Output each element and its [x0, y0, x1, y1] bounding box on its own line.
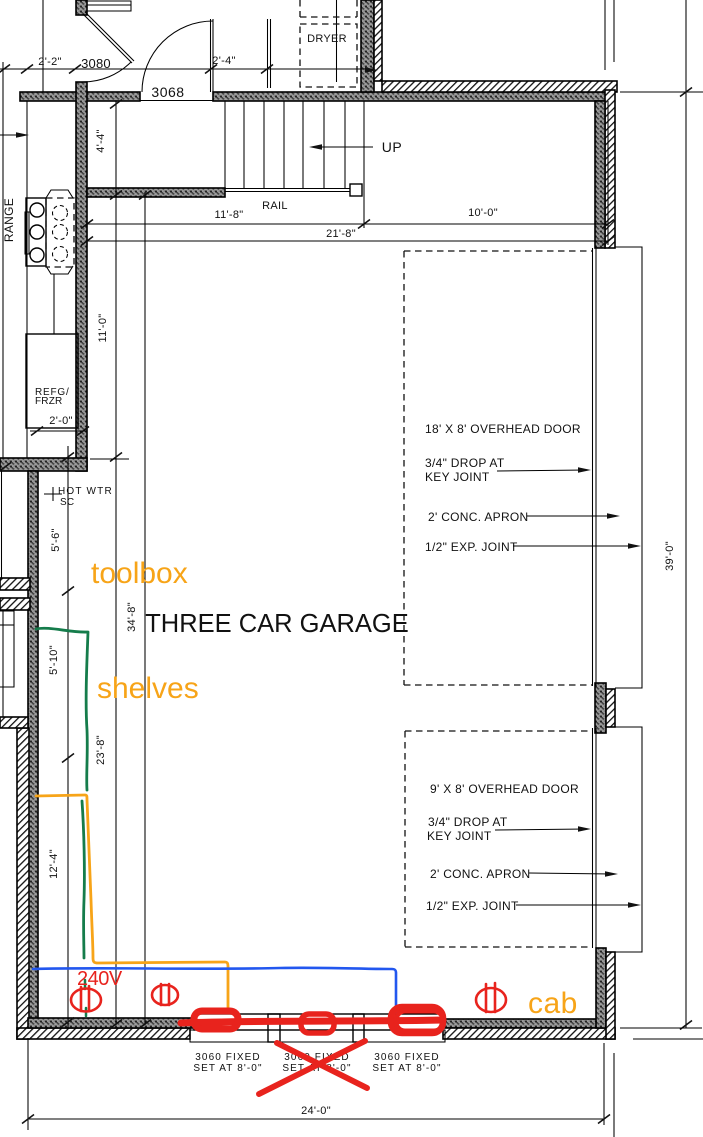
svg-text:SC: SC — [60, 497, 74, 508]
svg-text:12'-4": 12'-4" — [48, 849, 60, 879]
svg-text:2'-0": 2'-0" — [49, 415, 72, 427]
svg-text:SET AT 8'-0": SET AT 8'-0" — [193, 1063, 262, 1074]
svg-text:4'-4": 4'-4" — [95, 129, 107, 152]
svg-text:3/4" DROP AT: 3/4" DROP AT — [428, 815, 508, 829]
svg-text:FRZR: FRZR — [35, 396, 62, 407]
svg-text:39'-0": 39'-0" — [664, 541, 676, 571]
svg-text:240V: 240V — [77, 968, 123, 990]
svg-text:cab: cab — [528, 987, 578, 1020]
svg-text:toolbox: toolbox — [91, 557, 188, 590]
svg-text:2' CONC. APRON: 2' CONC. APRON — [430, 867, 531, 881]
svg-text:UP: UP — [382, 139, 402, 155]
svg-text:2'-4": 2'-4" — [212, 55, 235, 67]
svg-text:11'-0": 11'-0" — [97, 313, 109, 342]
svg-text:3/4" DROP AT: 3/4" DROP AT — [425, 456, 505, 470]
svg-text:5'-10": 5'-10" — [48, 645, 60, 675]
svg-text:21'-8": 21'-8" — [326, 228, 356, 240]
svg-text:3080: 3080 — [81, 56, 111, 71]
svg-text:34'-8": 34'-8" — [126, 602, 138, 632]
svg-text:3068: 3068 — [151, 84, 184, 100]
svg-text:2' CONC. APRON: 2' CONC. APRON — [428, 510, 529, 524]
svg-text:HOT WTR: HOT WTR — [58, 486, 113, 497]
svg-text:THREE CAR GARAGE: THREE CAR GARAGE — [145, 610, 409, 638]
svg-text:RANGE: RANGE — [2, 198, 16, 242]
svg-text:SET AT 8'-0": SET AT 8'-0" — [372, 1063, 441, 1074]
svg-text:1/2" EXP. JOINT: 1/2" EXP. JOINT — [426, 899, 519, 913]
svg-text:18' X 8' OVERHEAD DOOR: 18' X 8' OVERHEAD DOOR — [425, 422, 581, 436]
svg-text:9' X 8' OVERHEAD DOOR: 9' X 8' OVERHEAD DOOR — [430, 782, 579, 796]
svg-text:10'-0": 10'-0" — [468, 207, 498, 219]
svg-text:DRYER: DRYER — [307, 33, 347, 45]
svg-text:3060 FIXED: 3060 FIXED — [195, 1052, 260, 1063]
svg-text:shelves: shelves — [97, 672, 199, 705]
svg-text:24'-0": 24'-0" — [301, 1105, 331, 1117]
svg-text:5'-6": 5'-6" — [50, 528, 62, 551]
svg-text:11'-8": 11'-8" — [214, 209, 243, 221]
svg-text:23'-8": 23'-8" — [95, 735, 107, 765]
svg-text:KEY JOINT: KEY JOINT — [425, 470, 490, 484]
svg-text:2'-2": 2'-2" — [38, 56, 61, 68]
svg-text:1/2" EXP. JOINT: 1/2" EXP. JOINT — [425, 540, 518, 554]
svg-text:KEY JOINT: KEY JOINT — [427, 829, 492, 843]
svg-text:RAIL: RAIL — [262, 200, 288, 212]
svg-text:3060 FIXED: 3060 FIXED — [374, 1052, 439, 1063]
